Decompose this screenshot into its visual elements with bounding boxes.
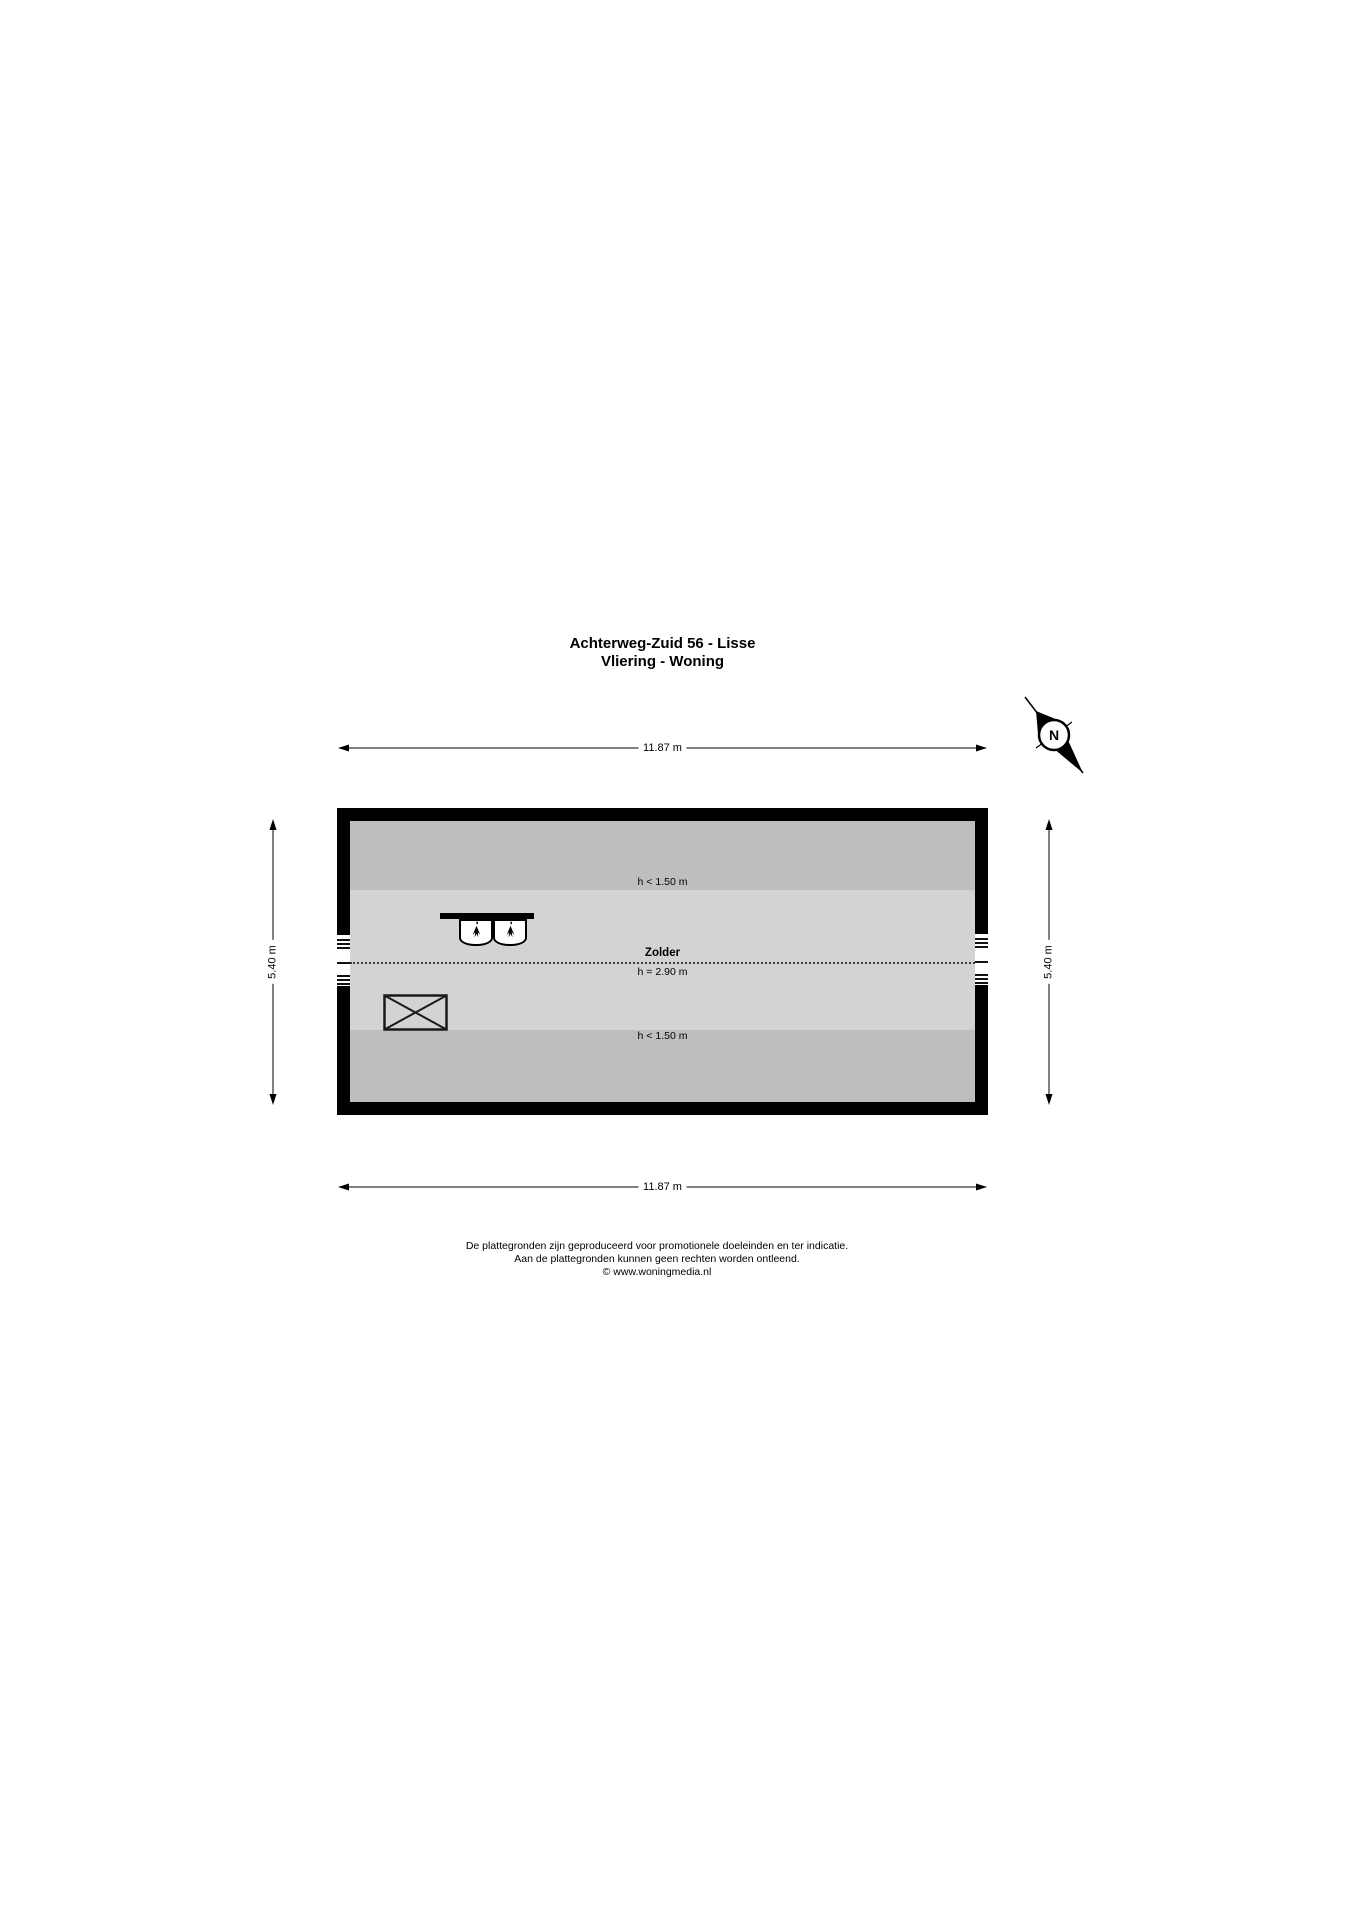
disclaimer-line-1: De plattegronden zijn geproduceerd voor … (307, 1240, 1007, 1253)
page-title-floor: Vliering - Woning (337, 653, 988, 671)
dimension-height-left: 5.40 m (265, 818, 281, 1106)
wardrobe-section-left (459, 919, 493, 946)
window-left-icon (337, 935, 350, 986)
low-headroom-label-bottom: h < 1.50 m (350, 1030, 975, 1043)
disclaimer: De plattegronden zijn geproduceerd voor … (307, 1240, 1007, 1279)
dimension-width-top-label: 11.87 m (638, 742, 687, 755)
dimension-width-bottom-label: 11.87 m (638, 1181, 687, 1194)
dimension-height-left-label: 5.40 m (267, 940, 280, 984)
page-title: Achterweg-Zuid 56 - Lisse Vliering - Won… (337, 635, 988, 671)
floorplan-page: { "title": { "line1": "Achterweg-Zuid 56… (0, 0, 1358, 1920)
compass-north-icon: N (1012, 686, 1102, 786)
ridge-dotted-line (350, 962, 975, 964)
disclaimer-line-2: Aan de plattegronden kunnen geen rechten… (307, 1253, 1007, 1266)
clothes-hanger-icon (471, 921, 482, 938)
dimension-height-right: 5.40 m (1041, 818, 1057, 1106)
compass-north-letter: N (1049, 727, 1059, 743)
disclaimer-copyright: © www.woningmedia.nl (307, 1266, 1007, 1279)
dimension-width-top: 11.87 m (337, 740, 988, 756)
dimension-height-right-label: 5.40 m (1043, 940, 1056, 984)
void-x-symbol (383, 994, 448, 1031)
room-label-zolder: Zolder (350, 947, 975, 960)
low-headroom-label-top: h < 1.50 m (350, 876, 975, 889)
room-height-label: h = 2.90 m (350, 966, 975, 979)
wardrobe-section-right (493, 919, 527, 946)
page-title-address: Achterweg-Zuid 56 - Lisse (337, 635, 988, 653)
attic-floor: h < 1.50 m Zolder h = 2.90 m h < 1.50 m (350, 821, 975, 1102)
window-right-icon (975, 934, 988, 985)
dimension-width-bottom: 11.87 m (337, 1179, 988, 1195)
clothes-hanger-icon (505, 921, 516, 938)
